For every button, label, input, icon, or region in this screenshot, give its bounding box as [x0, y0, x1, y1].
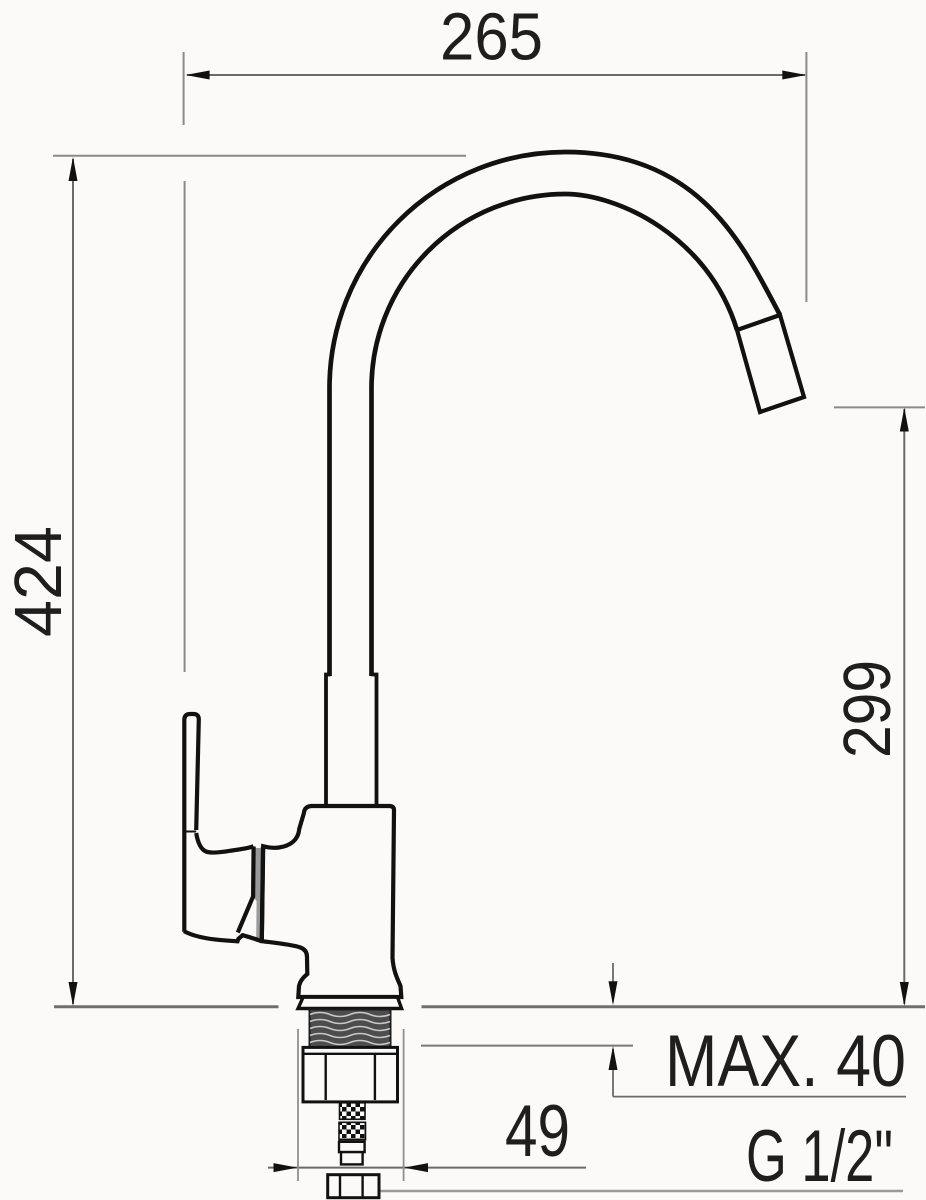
svg-text:299: 299 [830, 660, 905, 758]
svg-text:MAX. 40: MAX. 40 [665, 1021, 906, 1102]
svg-text:424: 424 [1, 526, 76, 637]
svg-text:G 1/2": G 1/2" [746, 1116, 893, 1197]
svg-text:265: 265 [440, 0, 543, 75]
svg-text:49: 49 [505, 1091, 570, 1172]
